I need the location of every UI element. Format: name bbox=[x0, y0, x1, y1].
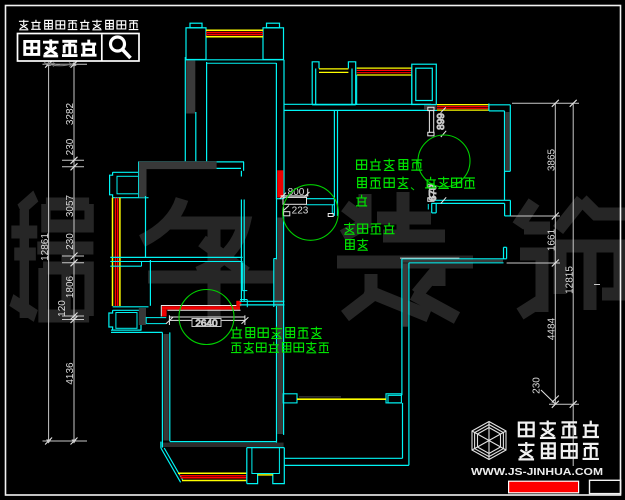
svg-text:223: 223 bbox=[292, 205, 309, 216]
svg-text:230: 230 bbox=[65, 233, 76, 250]
svg-text:3282: 3282 bbox=[65, 102, 76, 125]
svg-text:12861: 12861 bbox=[40, 233, 51, 261]
svg-text:4484: 4484 bbox=[547, 317, 558, 340]
svg-text:1806: 1806 bbox=[65, 275, 76, 298]
svg-text:1661: 1661 bbox=[547, 228, 558, 251]
svg-text:230: 230 bbox=[532, 377, 543, 394]
svg-text:3057: 3057 bbox=[65, 194, 76, 217]
svg-text:12815: 12815 bbox=[564, 266, 575, 294]
svg-text:WWW.JS-JINHUA.COM: WWW.JS-JINHUA.COM bbox=[471, 466, 603, 478]
svg-text:4136: 4136 bbox=[65, 362, 76, 385]
svg-text:230: 230 bbox=[65, 138, 76, 155]
svg-text:120: 120 bbox=[57, 300, 68, 317]
svg-text:3865: 3865 bbox=[547, 148, 558, 171]
svg-text:2640: 2640 bbox=[195, 318, 218, 329]
svg-text:899: 899 bbox=[436, 113, 447, 130]
